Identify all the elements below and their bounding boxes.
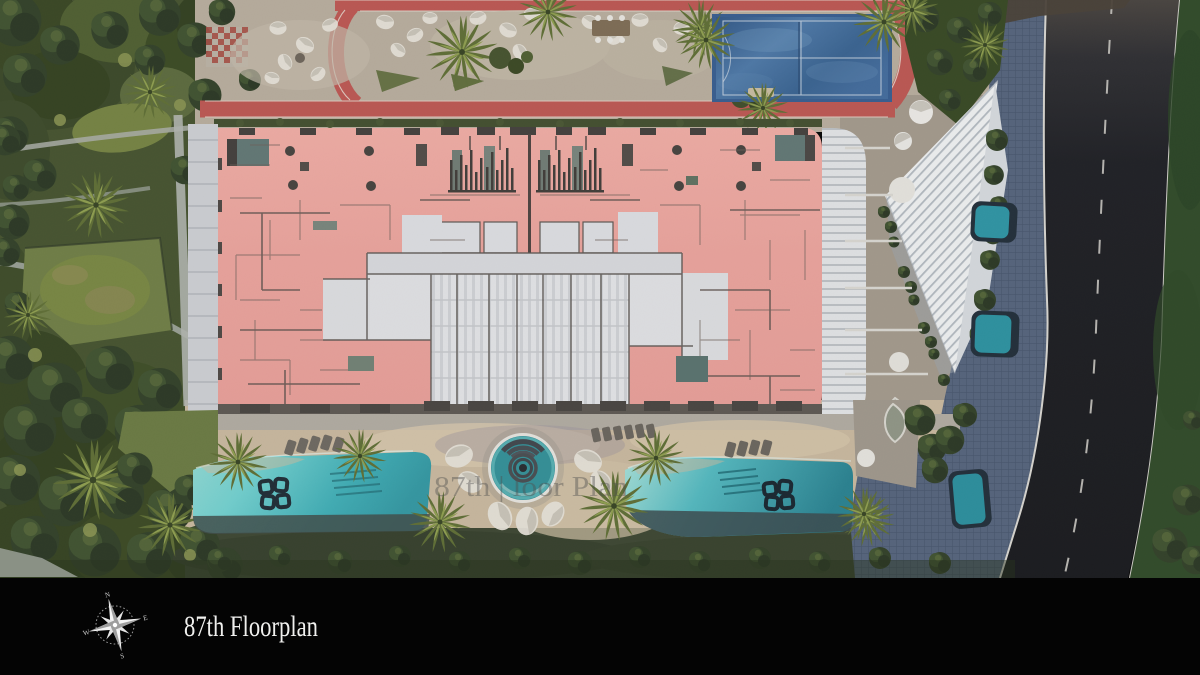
svg-text:87th Floorplan: 87th Floorplan [184,610,318,643]
